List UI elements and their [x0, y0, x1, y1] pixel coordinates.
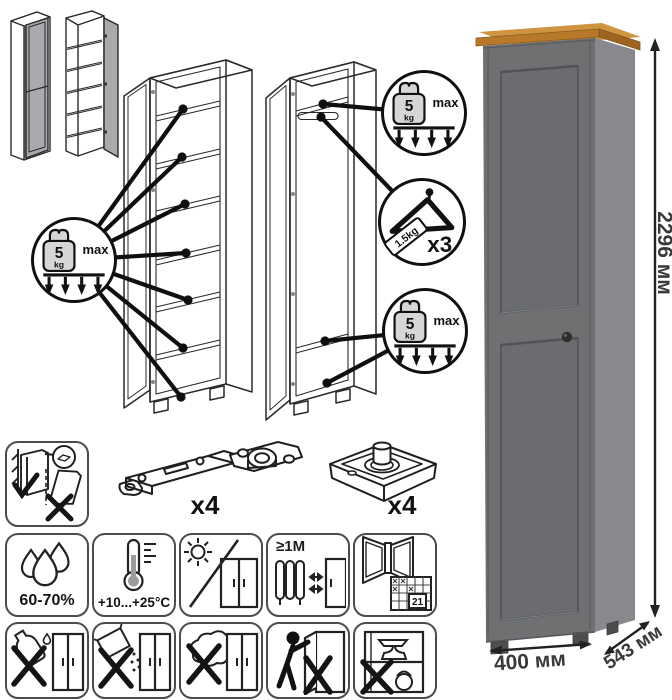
weight-icon: 5 kg [39, 227, 79, 273]
no-abrasive-powder-panel [92, 622, 176, 699]
no-abrasive-sponge-panel [179, 622, 263, 699]
downward-arrows-icon [42, 273, 106, 296]
temperature-panel: +10...+25°C [92, 533, 176, 617]
downward-arrows-icon [393, 344, 457, 367]
humidity-panel: 60-70% [5, 533, 89, 617]
humidity-label: 60-70% [7, 592, 87, 610]
radiator-icon [276, 561, 304, 605]
cabinet-icon [140, 634, 170, 690]
ventilation-panel: 21 [353, 533, 437, 617]
no-liquid-cleaners-panel [5, 622, 89, 699]
kettlebell-icon [396, 672, 412, 691]
temperature-label: +10...+25°C [94, 595, 174, 610]
drop-icon [43, 634, 50, 644]
cabinet-icon [53, 634, 83, 690]
water-drops-icon [22, 543, 68, 585]
no-leaning-on-doors-panel [266, 622, 350, 699]
calendar-day-label: 21 [412, 597, 424, 608]
hanger-weight-tag: 1.5kg [384, 217, 428, 256]
no-direct-sunlight-panel [179, 533, 263, 617]
cabinet-icon [227, 634, 257, 690]
hanger-load-limit-circle: 1.5kg x3 [378, 178, 466, 266]
person-icon [279, 632, 308, 689]
max-label: max [433, 313, 459, 328]
bottom-shelf-load-limit-circle: 5 kg max [382, 288, 468, 374]
weight-icon: 5 kg [390, 298, 430, 344]
depth-dimension-label: 543 мм [592, 637, 672, 659]
calendar-icon: 21 [391, 577, 431, 610]
assembly-instruction-sheet: 5 kg max 5 kg max [0, 0, 672, 700]
shelf-load-limit-circle: 5 kg max [31, 217, 117, 303]
cabinet-icon [221, 559, 257, 607]
cabinet-icon [326, 559, 346, 607]
hanger-count-label: x3 [427, 232, 452, 257]
thermometer-icon [125, 540, 157, 590]
downward-arrows-icon [392, 126, 456, 149]
svg-text:kg: kg [405, 330, 415, 340]
no-heavy-items-panel [353, 622, 437, 699]
max-label: max [432, 95, 458, 110]
hinge-count-label: x4 [191, 490, 220, 520]
wall-anchoring-warning-panel [5, 441, 89, 527]
callout-dots [176, 99, 331, 401]
height-dimension-label: 2296 мм [643, 170, 672, 335]
sun-icon [184, 538, 212, 566]
hinge-hardware-drawing: x4 [112, 428, 307, 523]
width-dimension-label: 400 мм [468, 650, 592, 674]
svg-text:kg: kg [404, 112, 414, 122]
x-mark-icon [101, 650, 131, 686]
heat-distance-panel: ≥1М [266, 533, 350, 617]
weight-icon: 5 kg [389, 80, 429, 126]
max-label: max [82, 242, 108, 257]
top-shelf-load-limit-circle: 5 kg max [381, 70, 467, 156]
spacing-arrows-icon [310, 574, 322, 592]
svg-text:kg: kg [54, 259, 64, 269]
callout-lines [0, 0, 672, 440]
foot-count-label: x4 [388, 490, 417, 520]
